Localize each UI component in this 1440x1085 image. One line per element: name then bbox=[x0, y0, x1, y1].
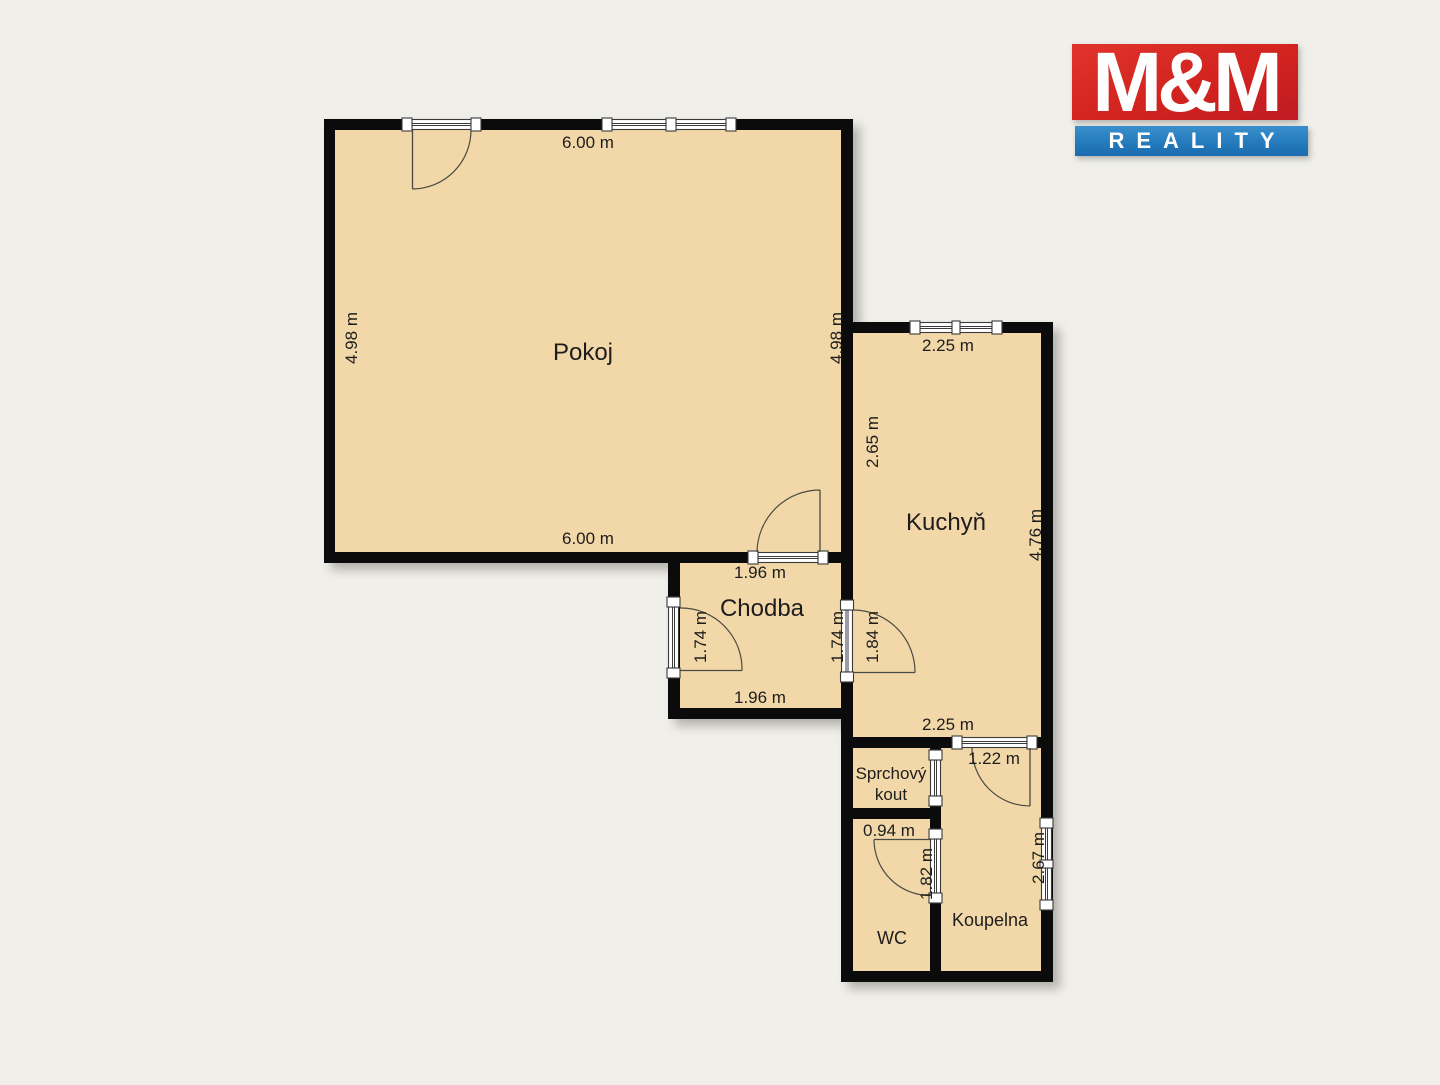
dim-label-kuchyn-top: 2.25 m bbox=[922, 336, 974, 355]
door-jamb bbox=[667, 668, 680, 678]
room-label-chodba: Chodba bbox=[720, 595, 805, 622]
window-band bbox=[920, 323, 952, 333]
wall-sprchovy-wc-divider bbox=[841, 808, 941, 819]
dim-label-koupelna-right: 2.67 m bbox=[1029, 832, 1048, 884]
wall-chodba-bottom bbox=[668, 708, 853, 719]
room-label-wc: WC bbox=[877, 928, 907, 948]
door-jamb bbox=[402, 118, 412, 131]
door-jamb bbox=[841, 600, 854, 610]
room-label-pokoj: Pokoj bbox=[553, 339, 613, 366]
mm-reality-logo: M&M REALITY bbox=[1072, 44, 1308, 156]
room-label-kuchyn: Kuchyň bbox=[906, 509, 986, 536]
room-label-koupelna: Koupelna bbox=[952, 910, 1029, 930]
dim-label-pokoj-bottom: 6.00 m bbox=[562, 529, 614, 548]
door-jamb bbox=[929, 829, 942, 839]
dim-label-chodba-right: 1.74 m bbox=[828, 611, 847, 663]
wall-pokoj-left bbox=[324, 119, 335, 563]
dim-label-koupelna-top: 1.22 m bbox=[968, 749, 1020, 768]
window-band bbox=[676, 120, 726, 130]
window-jamb bbox=[992, 321, 1002, 334]
window-band bbox=[960, 323, 992, 333]
window-jamb bbox=[1040, 900, 1053, 910]
dim-label-kuchyn-bottom: 2.25 m bbox=[922, 715, 974, 734]
window-jamb bbox=[726, 118, 736, 131]
door-band bbox=[962, 738, 1027, 748]
dim-label-kuchyn-right: 4.76 m bbox=[1026, 509, 1045, 561]
window-pokoj-icon bbox=[602, 118, 736, 131]
dim-label-chodba-left: 1.74 m bbox=[691, 611, 710, 663]
door-band bbox=[931, 760, 941, 796]
dim-label-kuchyn-left-lower: 1.84 m bbox=[863, 611, 882, 663]
room-label-sprchovy-kout-line2: kout bbox=[875, 785, 907, 804]
door-jamb bbox=[818, 551, 828, 564]
dim-label-wc-top: 0.94 m bbox=[863, 821, 915, 840]
floorplan-svg: 6.00 m 4.98 m Pokoj 4.98 m 6.00 m 2.25 m… bbox=[0, 0, 1440, 1080]
wall-center-spine bbox=[841, 119, 853, 982]
door-sprchovy-koupelna-icon bbox=[929, 750, 942, 806]
door-band bbox=[758, 553, 818, 563]
dim-label-pokoj-top: 6.00 m bbox=[562, 133, 614, 152]
dim-label-pokoj-left: 4.98 m bbox=[342, 312, 361, 364]
door-jamb bbox=[667, 597, 680, 607]
door-band bbox=[669, 607, 679, 668]
dim-label-chodba-bottom: 1.96 m bbox=[734, 688, 786, 707]
door-jamb bbox=[471, 118, 481, 131]
window-jamb bbox=[666, 118, 676, 131]
window-band bbox=[612, 120, 666, 130]
window-jamb bbox=[602, 118, 612, 131]
window-jamb bbox=[1040, 818, 1053, 828]
door-jamb bbox=[1027, 736, 1037, 749]
logo-reality-text: REALITY bbox=[1075, 126, 1308, 156]
dim-label-wc-side: 1.82 m bbox=[917, 848, 936, 900]
wall-bathroom-bottom bbox=[841, 971, 1053, 982]
logo-mm-text: M&M bbox=[1072, 44, 1298, 120]
dim-label-pokoj-right: 4.98 m bbox=[827, 312, 846, 364]
dim-label-chodba-top: 1.96 m bbox=[734, 563, 786, 582]
window-jamb bbox=[952, 321, 960, 334]
door-band bbox=[412, 120, 471, 130]
room-label-sprchovy-kout-line1: Sprchový bbox=[856, 764, 927, 783]
door-jamb bbox=[929, 750, 942, 760]
door-jamb bbox=[929, 796, 942, 806]
door-jamb bbox=[841, 672, 854, 682]
door-jamb bbox=[952, 736, 962, 749]
dim-label-kuchyn-left-upper: 2.65 m bbox=[863, 416, 882, 468]
floorplan-canvas: 6.00 m 4.98 m Pokoj 4.98 m 6.00 m 2.25 m… bbox=[0, 0, 1440, 1080]
window-kuchyn-icon bbox=[910, 321, 1002, 334]
plan-structure bbox=[324, 119, 1053, 982]
window-jamb bbox=[910, 321, 920, 334]
